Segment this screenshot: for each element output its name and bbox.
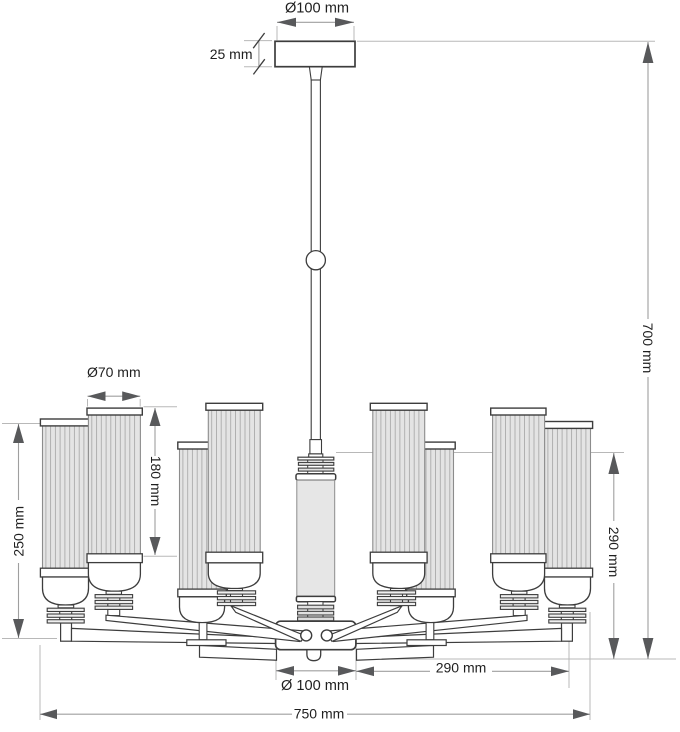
svg-text:Ø70 mm: Ø70 mm [87, 364, 141, 380]
svg-text:750 mm: 750 mm [294, 706, 345, 722]
svg-text:25 mm: 25 mm [210, 46, 253, 62]
svg-text:290 mm: 290 mm [606, 527, 622, 578]
svg-text:Ø 100 mm: Ø 100 mm [281, 678, 349, 694]
svg-text:250 mm: 250 mm [11, 506, 27, 557]
svg-text:180 mm: 180 mm [148, 456, 164, 507]
svg-text:290 mm: 290 mm [436, 659, 487, 675]
svg-text:Ø100 mm: Ø100 mm [285, 0, 349, 16]
svg-text:700 mm: 700 mm [640, 323, 656, 374]
